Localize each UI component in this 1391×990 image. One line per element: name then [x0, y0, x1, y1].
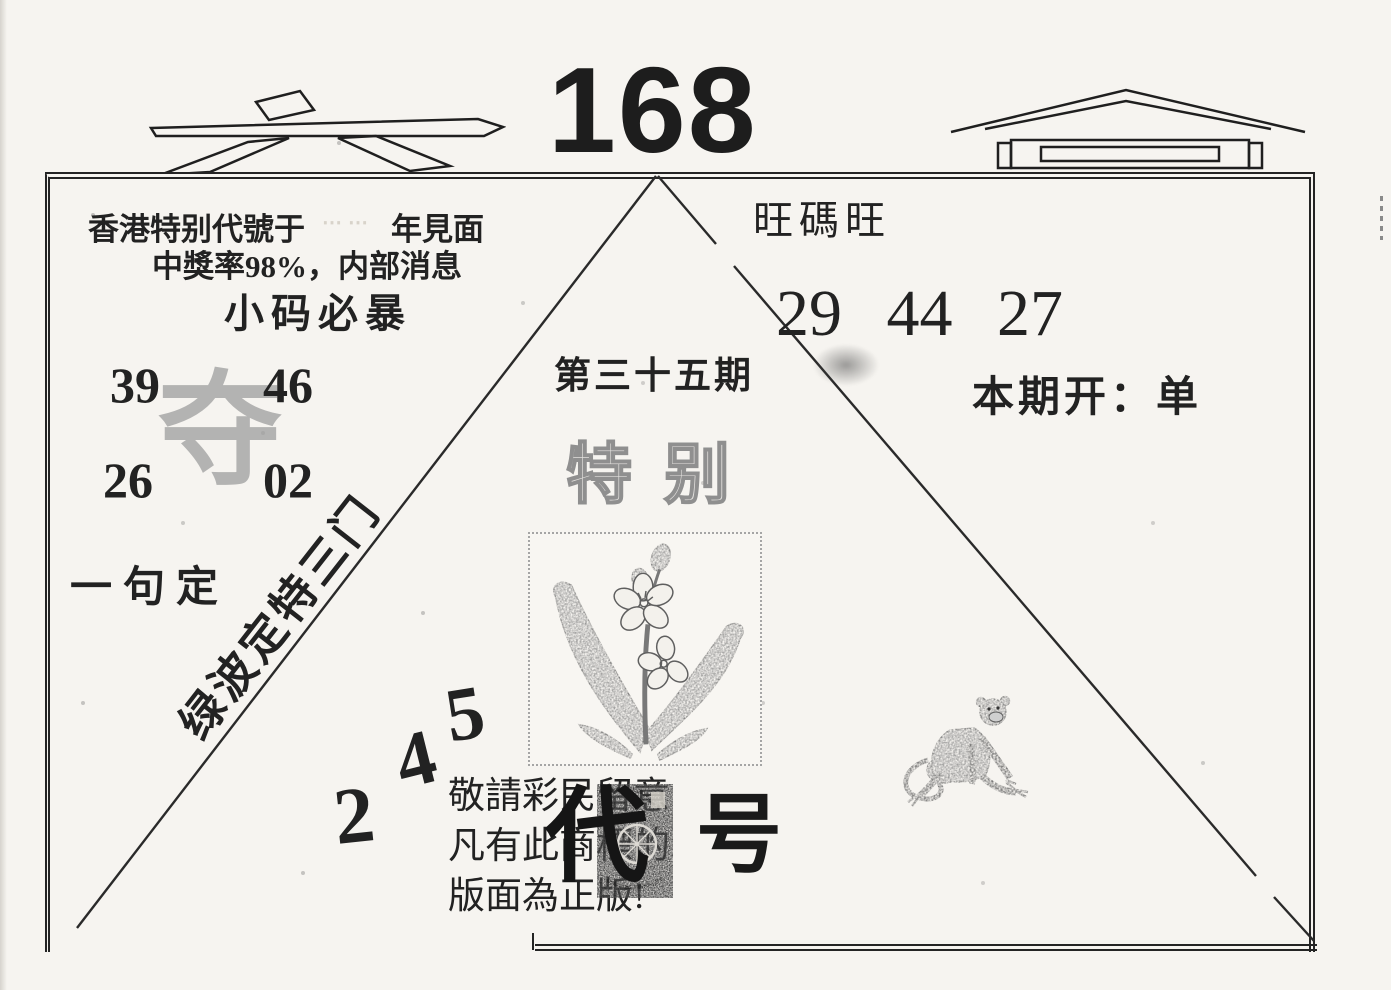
intro-line1-suffix: 年見面 [391, 212, 484, 248]
phrase-one-sentence: 一句定 [70, 564, 229, 612]
headline-text: 小码必暴 [224, 291, 412, 337]
result-line: 本期开：单 [972, 374, 1202, 422]
intro-line1: 香港特别代號于 ⋯⋯ 年見面 [88, 212, 484, 248]
result-label: 本期开： [972, 375, 1156, 421]
stair-number-2: 2 [330, 774, 378, 858]
issue-title: 第三十五期 [554, 356, 754, 399]
result-value: 单 [1156, 375, 1202, 421]
flower-illustration-box [528, 532, 762, 766]
plum-blossom-illustration [530, 534, 760, 764]
wang-ma-wang-text: 旺碼旺 [753, 198, 891, 244]
code-char-dai: 代 [545, 786, 649, 890]
corner-number-02: 02 [263, 452, 313, 510]
code-char-hao: 号 [696, 792, 782, 878]
corner-number-26: 26 [103, 452, 153, 510]
hot-numbers: 29 44 27 [776, 276, 1063, 352]
monkey-illustration [892, 686, 1064, 814]
intro-line2: 中獎率98%，内部消息 [152, 249, 462, 285]
corner-number-46: 46 [263, 357, 313, 415]
intro-line1-prefix: 香港特别代號于 [88, 212, 305, 248]
scanned-lottery-flyer: { "masthead": { "left_glyph": "六", "numb… [0, 0, 1391, 990]
faded-gap: ⋯⋯ [305, 212, 391, 248]
special-outline-text: 特别 [566, 438, 762, 514]
monkey-face [989, 712, 1003, 722]
corner-number-39: 39 [110, 357, 160, 415]
